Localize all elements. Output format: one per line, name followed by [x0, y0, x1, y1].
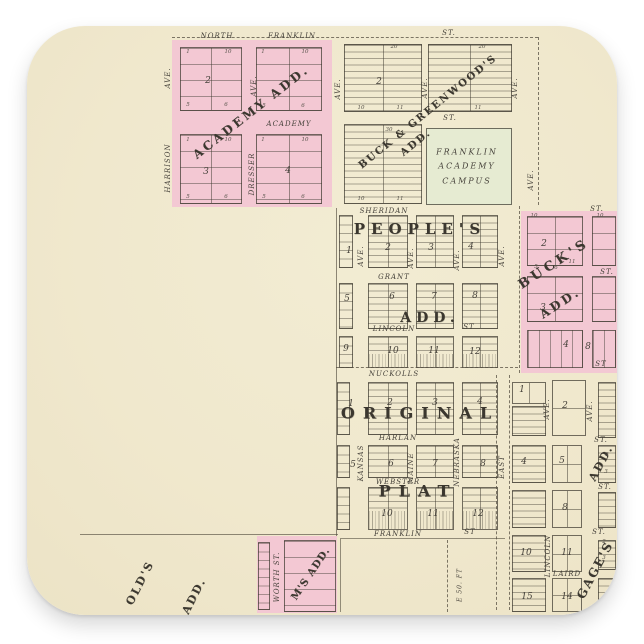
block-gages-14: 14 — [561, 592, 572, 602]
lot-number: 20 — [479, 44, 486, 50]
lot-number: 1 — [186, 137, 190, 143]
lot-number: 10 — [531, 213, 538, 219]
campus-line-3: CAMPUS — [442, 177, 492, 186]
lot-number: 11 — [569, 259, 576, 265]
avenue-harrison-ave: AVE. — [164, 67, 172, 88]
block-original-3: 3 — [432, 398, 438, 408]
addition-peoples-add: ADD. — [400, 310, 460, 326]
campus-line-2: ACADEMY — [438, 162, 495, 171]
block-outline — [527, 330, 583, 368]
lot-number: 6 — [554, 265, 558, 271]
block-outline — [512, 406, 546, 436]
lot-number: 1 — [261, 137, 265, 143]
product-photo: NORTHFRANKLINST.ACADEMYST.SHERIDANGRANTL… — [0, 0, 644, 644]
lot-number: 11 — [475, 105, 482, 111]
block-gages-5: 5 — [559, 456, 565, 466]
lot-number: 10 — [302, 137, 309, 143]
avenue-maine: MAINE — [407, 452, 415, 483]
block-outline — [552, 445, 582, 483]
street-st-gages-3: ST. — [592, 528, 606, 536]
block-gages-10: 10 — [520, 548, 531, 558]
block-peoples-5: 5 — [344, 294, 350, 304]
block-outline — [344, 124, 422, 204]
street-franklin-st: ST — [464, 528, 475, 536]
boundary-line — [509, 375, 510, 610]
block-outline — [337, 487, 350, 530]
block-peoples-8: 8 — [472, 291, 478, 301]
block-outline — [337, 445, 350, 478]
street-st-mid: ST. — [443, 114, 457, 122]
block-outline — [592, 216, 616, 266]
block-gages-1: 1 — [519, 385, 525, 395]
block-academy-4: 4 — [285, 166, 291, 176]
boundary-line — [538, 37, 539, 205]
lot-number: 5 — [186, 102, 190, 108]
lot-number: 3 — [604, 469, 608, 475]
block-original-2: 2 — [387, 398, 393, 408]
lot-number: 10 — [358, 105, 365, 111]
addition-peoples: PEOPLE'S — [354, 220, 486, 238]
block-peoples-3: 3 — [428, 243, 434, 253]
lot-number: 6 — [224, 194, 228, 200]
lot-number: 5 — [534, 264, 538, 270]
street-st-bucks-top: ST. — [590, 205, 604, 213]
lot-number: 10 — [358, 196, 365, 202]
block-outline — [339, 215, 353, 268]
block-original-8: 8 — [480, 459, 486, 469]
avenue-peoples-2: AVE. — [407, 247, 415, 268]
street-lincoln-st: ST — [463, 323, 474, 331]
block-peoples-9: 9 — [343, 344, 349, 354]
campus-line-1: FRANKLIN — [436, 148, 498, 157]
block-peoples-11: 11 — [428, 346, 439, 356]
block-peoples-1: 1 — [346, 246, 352, 256]
street-north: NORTH — [201, 32, 234, 40]
street-franklin-south: FRANKLIN — [374, 530, 422, 538]
avenue-dresser-ave: AVE. — [250, 75, 258, 96]
street-sheridan: SHERIDAN — [360, 207, 409, 215]
block-outline — [512, 382, 546, 404]
avenue-bg-left: AVE. — [334, 78, 342, 99]
lot-number: 10 — [225, 137, 232, 143]
block-gages-2: 2 — [562, 401, 568, 411]
block-outline — [339, 283, 353, 329]
south-of-franklin-parcel — [340, 538, 505, 612]
block-academy-3: 3 — [203, 167, 209, 177]
block-bg-2: 2 — [376, 77, 382, 87]
lot-number: 20 — [391, 44, 398, 50]
square-sticker: NORTHFRANKLINST.ACADEMYST.SHERIDANGRANTL… — [27, 26, 617, 615]
note-e50ft: E 50. FT — [457, 568, 464, 602]
addition-fragment-olds-add: ADD. — [179, 576, 208, 615]
block-bucks-3: 3 — [540, 303, 546, 313]
street-harlan: HARLAN — [379, 434, 417, 442]
avenue-peoples-1: AVE. — [357, 245, 365, 266]
avenue-peoples-3: AVE. — [453, 249, 461, 270]
lot-number: 10 — [225, 49, 232, 55]
avenue-gages-1: AVE. — [543, 398, 551, 419]
block-peoples-2: 2 — [385, 243, 391, 253]
addition-fragment-olds: OLD'S — [123, 559, 156, 608]
block-original-10: 10 — [381, 509, 392, 519]
block-outline — [598, 578, 616, 612]
street-lincoln: LINCOLN — [373, 325, 415, 333]
avenue-nebraska: NEBRASKA — [453, 437, 461, 487]
street-st-bucks-mid: ST. — [600, 268, 614, 276]
street-franklin-north: FRANKLIN — [268, 32, 316, 40]
block-outline — [598, 492, 616, 528]
avenue-bg-mid: AVE. — [421, 77, 429, 98]
addition-original: ORIGINAL — [341, 404, 499, 423]
block-original-11: 11 — [427, 509, 438, 519]
street-laird: LAIRD — [553, 570, 581, 578]
block-bucks-8: 8 — [585, 342, 591, 352]
block-peoples-6: 6 — [389, 292, 395, 302]
avenue-right-edge: AVE. — [527, 169, 535, 190]
block-original-12: 12 — [472, 509, 483, 519]
block-original-1: 1 — [348, 399, 354, 409]
block-outline — [512, 490, 546, 528]
street-lincoln-vertical: LINCOLN — [544, 535, 552, 577]
lot-number: 11 — [397, 196, 404, 202]
lot-number: 1 — [261, 49, 265, 55]
block-academy-2: 2 — [205, 76, 211, 86]
avenue-bg-right: AVE. — [511, 77, 519, 98]
street-st-gages-2: ST. — [598, 483, 612, 491]
avenue-peoples-4: AVE. — [498, 245, 506, 266]
boundary-line — [336, 208, 337, 536]
block-original-6: 6 — [388, 459, 394, 469]
block-outline — [592, 276, 616, 322]
lot-number: 30 — [386, 127, 393, 133]
lot-number: 1 — [186, 49, 190, 55]
lot-number: 10 — [597, 213, 604, 219]
lot-number: 5 — [262, 103, 266, 109]
boundary-line — [519, 206, 520, 373]
lot-number: 6 — [301, 103, 305, 109]
avenue-gages-2: AVE. — [586, 400, 594, 421]
avenue-dresser: DRESSER — [248, 153, 256, 196]
addition-plat: PLAT — [379, 482, 458, 501]
block-original-4: 4 — [477, 397, 483, 407]
block-outline — [598, 382, 616, 438]
lot-number: 6 — [224, 102, 228, 108]
block-outline — [552, 380, 586, 436]
block-gages-4: 4 — [521, 457, 527, 467]
street-nuckolls: NUCKOLLS — [369, 370, 419, 378]
lot-number: 3 — [602, 555, 606, 561]
avenue-harrison: HARRISON — [164, 143, 172, 192]
block-original-7: 7 — [432, 459, 438, 469]
block-peoples-4: 4 — [468, 242, 474, 252]
lot-number: 5 — [186, 194, 190, 200]
street-academy: ACADEMY — [267, 120, 312, 128]
block-peoples-12: 12 — [469, 347, 480, 357]
lot-number: 11 — [397, 105, 404, 111]
block-bucks-4: 4 — [563, 340, 569, 350]
block-peoples-10: 10 — [387, 346, 398, 356]
block-original-5: 5 — [350, 460, 356, 470]
lot-number: 5 — [262, 194, 266, 200]
avenue-east: EAST — [498, 455, 506, 479]
section-line — [80, 534, 338, 535]
lot-number: 10 — [302, 49, 309, 55]
block-outline — [258, 542, 270, 610]
plat-map: NORTHFRANKLINST.ACADEMYST.SHERIDANGRANTL… — [27, 26, 617, 615]
avenue-kansas: KANSAS — [357, 445, 365, 482]
block-bucks-2: 2 — [541, 239, 547, 249]
block-gages-11: 11 — [561, 548, 572, 558]
street-grant: GRANT — [378, 273, 410, 281]
boundary-line — [336, 367, 518, 368]
block-gages-8: 8 — [562, 503, 568, 513]
street-st-top: ST. — [442, 29, 456, 37]
lot-number: 2 — [605, 452, 609, 458]
street-st-bucks-bot: ST — [595, 360, 606, 368]
block-peoples-7: 7 — [431, 292, 437, 302]
boundary-line — [447, 540, 448, 612]
lot-number: 2 — [602, 539, 606, 545]
street-worth: WORTH ST. — [273, 552, 281, 603]
block-outline — [512, 445, 546, 483]
lot-number: 6 — [301, 194, 305, 200]
block-outline — [344, 44, 422, 112]
block-gages-15: 15 — [521, 592, 532, 602]
